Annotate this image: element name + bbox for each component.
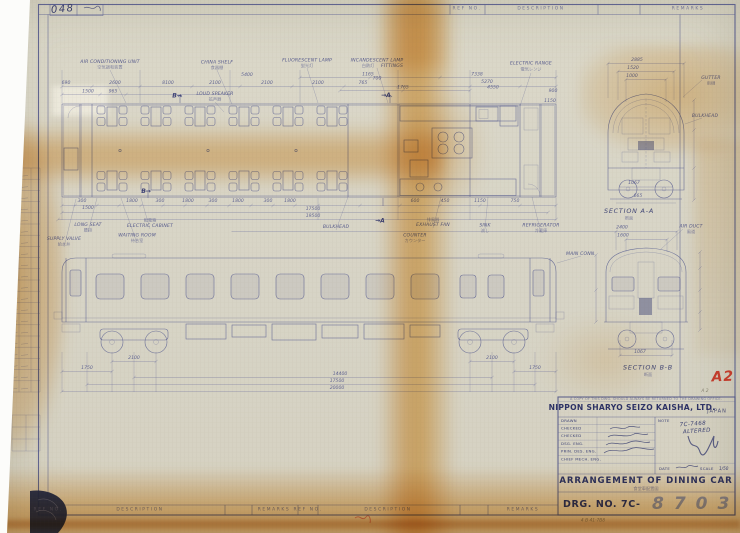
part-label-jp: 配電箱 xyxy=(144,217,157,224)
drawing-title: ARRANGEMENT OF DINING CAR xyxy=(559,476,732,486)
dimension-label: 2885 xyxy=(631,57,643,63)
column-header: DESCRIPTION xyxy=(364,507,411,513)
column-header: DESCRIPTION xyxy=(116,507,163,513)
dimension-label: 17500 xyxy=(330,378,345,384)
stain-left-margin xyxy=(0,118,66,453)
dimension-label: 7338 xyxy=(471,72,483,78)
part-label: EXHAUST FAN xyxy=(416,222,450,228)
dimension-label: 2600 xyxy=(109,80,121,86)
approval-row-label: CHECKED xyxy=(561,433,581,438)
dimension-label: 2400 xyxy=(616,225,628,231)
scale-value: 1/50 xyxy=(719,466,729,471)
part-label: SINK xyxy=(479,223,491,229)
scale-label: SCALE xyxy=(700,466,714,471)
part-label-jp: 腰掛 xyxy=(84,227,93,234)
sheet-number: 048 xyxy=(51,3,75,16)
part-label: WAITING ROOM xyxy=(118,233,156,239)
section-label-jp: 断面 xyxy=(625,215,633,222)
cut-arrow-label: →A xyxy=(381,92,391,99)
pencil-grade-mark: A 2 xyxy=(700,388,708,394)
part-label: BULKHEAD xyxy=(323,224,350,230)
part-label: GUTTER xyxy=(701,75,721,81)
part-label-jp: 雨樋 xyxy=(707,80,716,87)
part-label: SUPPLY VALVE xyxy=(47,236,81,242)
dimension-label: 965 xyxy=(109,89,118,95)
dimension-label: 450 xyxy=(441,198,450,204)
cut-arrow-label: B→ xyxy=(141,188,151,195)
part-label: INCANDESCENT LAMP xyxy=(351,58,404,64)
blueprint-paper: REF NO.DESCRIPTIONREMARKSREF NO.DESCRIPT… xyxy=(0,0,740,533)
dimension-label: 1067 xyxy=(628,180,640,186)
stain-top-right xyxy=(578,46,740,154)
stain-bottom-band xyxy=(0,466,740,533)
part-label-jp: 排風器 xyxy=(427,216,440,223)
dimension-label: 17500 xyxy=(306,206,321,212)
dimension-label: 1500 xyxy=(82,89,94,95)
dimension-label: 300 xyxy=(78,198,87,204)
part-label-jp: 空気調和装置 xyxy=(97,64,122,71)
dimension-label: 19500 xyxy=(306,213,321,219)
column-header: REF NO. xyxy=(294,507,323,513)
country-label: JAPAN xyxy=(706,409,727,415)
correction-patch xyxy=(52,86,108,116)
part-label-jp: 待合室 xyxy=(131,237,144,244)
note-label: NOTE xyxy=(658,418,670,423)
dimension-label: 2100 xyxy=(261,80,273,86)
pencil-note: 4 B 41·7B8 xyxy=(581,518,605,524)
dimension-label: 765 xyxy=(359,80,368,86)
dimension-label: 5270 xyxy=(481,79,493,85)
dimension-label: 600 xyxy=(411,198,420,204)
part-label-jp: 蛍光灯 xyxy=(301,62,314,69)
dimension-label: 300 xyxy=(209,198,218,204)
approval-row-label: DRAWN xyxy=(561,418,577,423)
copy-note: A COPY OF THIS DWG. SHOULD ALWAYS BE RET… xyxy=(570,397,722,401)
dimension-label: 1165 xyxy=(362,72,374,78)
section-label: SECTION A-A xyxy=(604,207,654,215)
approval-row-label: CHIEF MECH. ENG. xyxy=(561,456,601,461)
dimension-label: 1150 xyxy=(544,98,556,104)
part-label: ELECTRIC RANGE xyxy=(510,61,552,67)
dimension-label: 690 xyxy=(62,80,71,86)
stain-horizontal-band xyxy=(0,122,442,188)
dimension-label: 1520 xyxy=(627,65,639,71)
dimension-label: 1750 xyxy=(529,365,541,371)
section-label: SECTION B-B xyxy=(623,364,673,372)
column-header: DESCRIPTION xyxy=(517,6,564,12)
approval-row-label: PRIN. DES. ENG. xyxy=(561,449,596,454)
dimension-label: 2100 xyxy=(486,355,498,361)
stain-bottom-line xyxy=(0,520,740,528)
company-name: NIPPON SHARYO SEIZO KAISHA, LTD. xyxy=(549,403,716,412)
dimension-label: 8100 xyxy=(162,80,174,86)
note-altered: ALTERED xyxy=(682,428,712,436)
section-label-jp: 断面 xyxy=(644,371,652,378)
column-header: REMARKS xyxy=(258,507,291,513)
part-label: ELECTRIC CABINET xyxy=(127,223,174,229)
note-value: 7C-7468 xyxy=(679,421,706,429)
blueprint-linework: REF NO.DESCRIPTIONREMARKSREF NO.DESCRIPT… xyxy=(0,0,740,533)
column-header: REMARKS xyxy=(507,507,540,513)
dimension-label: 14400 xyxy=(333,371,348,377)
stain-kitchen-area xyxy=(402,88,488,213)
part-label-jp: 流し xyxy=(481,227,489,234)
stain-right-margin xyxy=(695,140,740,355)
stain-top-center xyxy=(385,0,445,70)
dimension-label: 1000 xyxy=(626,73,638,79)
part-label-jp: 白熱灯 xyxy=(362,62,375,69)
dimension-label: 1800 xyxy=(182,198,194,204)
part-label-jp: 拡声器 xyxy=(209,96,222,103)
dimension-label: 665 xyxy=(634,193,643,199)
dimension-label: 1800 xyxy=(126,198,138,204)
dimension-label: 2100 xyxy=(209,80,221,86)
dimension-label: 2100 xyxy=(128,355,140,361)
part-label: AIR CONDITIONING UNIT xyxy=(79,59,140,65)
part-label-jp: カウンター xyxy=(405,237,426,244)
part-label: LONG SEAT xyxy=(74,222,102,228)
stain-vertical-band xyxy=(378,0,456,533)
dimension-label: 4550 xyxy=(487,85,499,91)
part-label: LOUD SPEAKER xyxy=(196,91,233,97)
part-label: AIR DUCT xyxy=(678,224,703,230)
red-grade-mark: A2 xyxy=(710,369,734,386)
blueprint-scan: REF NO.DESCRIPTIONREMARKSREF NO.DESCRIPT… xyxy=(0,0,740,533)
column-header: REF NO. xyxy=(34,507,63,513)
dimension-label: 300 xyxy=(156,198,165,204)
stain-mid-right xyxy=(538,312,673,407)
dimension-label: 1765 xyxy=(397,85,409,91)
dimension-label: 1150 xyxy=(474,198,486,204)
dimension-label: 300 xyxy=(264,198,273,204)
dimension-label: 750 xyxy=(511,198,520,204)
part-label: REFRIGERATOR xyxy=(522,223,559,229)
cut-arrow-label: →A xyxy=(375,218,385,225)
part-label-jp: 電気レンジ xyxy=(521,66,542,73)
dimension-label: 900 xyxy=(549,88,558,94)
part-label-jp: 風道 xyxy=(687,228,696,235)
date-label: DATE xyxy=(659,466,670,471)
dimension-label: 1750 xyxy=(81,365,93,371)
column-header: REF NO. xyxy=(453,6,482,12)
part-label: FLUORESCENT LAMP xyxy=(282,58,332,64)
dimension-label: 2100 xyxy=(312,80,324,86)
part-label: MAIN CONN. xyxy=(566,251,596,257)
part-label: FITTINGS xyxy=(381,63,403,69)
part-label-jp: 給水弁 xyxy=(58,241,71,248)
part-label: BULKHEAD xyxy=(692,113,719,119)
drawing-title-jp: 食堂車配置図 xyxy=(633,485,658,492)
drg-number: 8703 xyxy=(652,494,739,514)
part-label: CHINA SHELF xyxy=(201,60,233,66)
part-label-jp: 食器棚 xyxy=(211,64,224,71)
dimension-label: 1800 xyxy=(284,198,296,204)
dimension-label: 1500 xyxy=(82,205,94,211)
approval-row-label: CHECKED xyxy=(561,426,581,431)
approval-row-label: DSG. ENG. xyxy=(561,441,584,446)
dimension-label: 1600 xyxy=(617,233,629,239)
column-header: REMARKS xyxy=(672,6,705,12)
drg-no-label: DRG. NO. 7C- xyxy=(563,499,641,510)
dimension-label: 20000 xyxy=(330,385,345,391)
cut-arrow-label: B→ xyxy=(172,93,182,100)
dimension-label: 1067 xyxy=(634,349,646,355)
dimension-label: 700 xyxy=(373,76,382,82)
part-label-jp: 冷蔵庫 xyxy=(535,227,548,234)
dimension-label: 5400 xyxy=(241,72,253,78)
part-label: COUNTER xyxy=(403,233,427,239)
dimension-label: 1800 xyxy=(232,198,244,204)
